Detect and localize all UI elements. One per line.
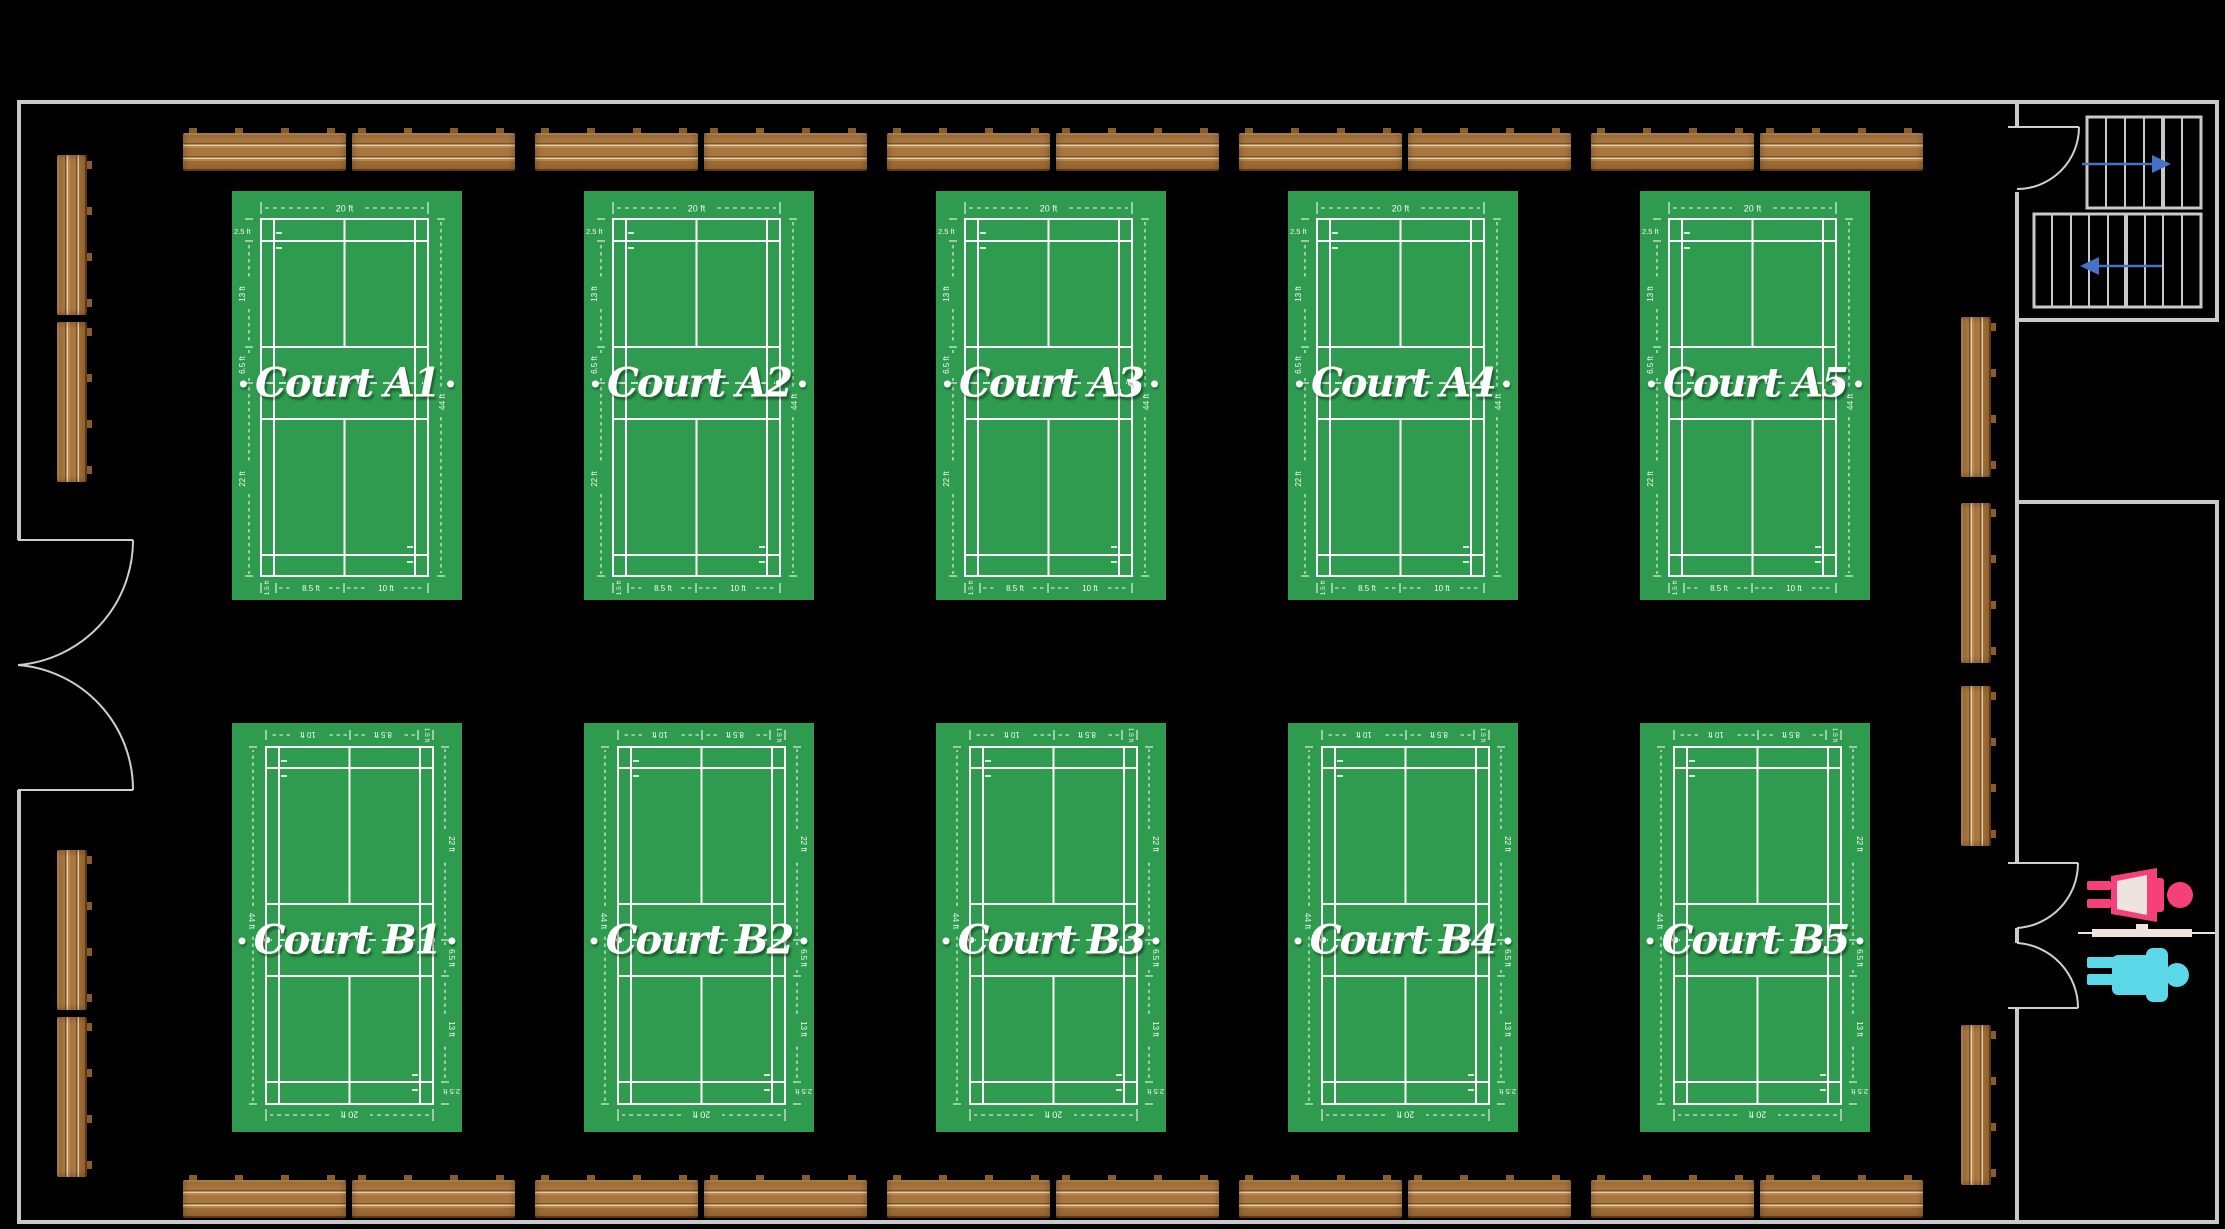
court-b5: 20 ft 2.5 ft 13 ft 6.5 ft 22 ft 44 ft 1.… [1640, 723, 1870, 1132]
bench [183, 133, 346, 171]
svg-text:20 ft: 20 ft [336, 204, 354, 214]
svg-text:22 ft: 22 ft [590, 470, 599, 486]
svg-text:2.5 ft: 2.5 ft [1642, 227, 1660, 236]
court-name: Court B5 [1662, 917, 1849, 964]
court-label: • Court B5 • [1646, 917, 1865, 964]
svg-text:8.5 ft: 8.5 ft [1710, 584, 1729, 593]
svg-text:1.5 ft: 1.5 ft [423, 728, 430, 743]
court-b1: 20 ft 2.5 ft 13 ft 6.5 ft 22 ft 44 ft 1.… [232, 723, 462, 1132]
net-dot-icon: • [1647, 378, 1656, 388]
svg-text:13 ft: 13 ft [1646, 285, 1655, 301]
net-dot-icon: • [1503, 935, 1512, 945]
court-name: Court A5 [1663, 360, 1847, 407]
svg-text:2.5 ft: 2.5 ft [234, 227, 252, 236]
svg-text:8.5 ft: 8.5 ft [654, 584, 673, 593]
bench [887, 1180, 1050, 1218]
court-name: Court A3 [959, 360, 1143, 407]
wall-top [17, 100, 2219, 104]
bench [352, 133, 515, 171]
court-a4: 20 ft 2.5 ft 13 ft 6.5 ft 22 ft 44 ft 1.… [1288, 191, 1518, 600]
net-dot-icon: • [1294, 935, 1303, 945]
svg-text:13 ft: 13 ft [942, 285, 951, 301]
svg-text:1.5 ft: 1.5 ft [1479, 728, 1486, 743]
court-a5: 20 ft 2.5 ft 13 ft 6.5 ft 22 ft 44 ft 1.… [1640, 191, 1870, 600]
svg-text:1.5 ft: 1.5 ft [1320, 581, 1327, 596]
svg-text:2.5 ft: 2.5 ft [1498, 1087, 1516, 1096]
bench [57, 155, 87, 315]
court-name: Court B2 [606, 917, 793, 964]
court-b2: 20 ft 2.5 ft 13 ft 6.5 ft 22 ft 44 ft 1.… [584, 723, 814, 1132]
stair-room-door [2008, 127, 2079, 189]
svg-text:22 ft: 22 ft [1646, 470, 1655, 486]
svg-text:10 ft: 10 ft [651, 730, 667, 739]
net-dot-icon: • [446, 378, 455, 388]
wall-left-upper [17, 100, 21, 540]
svg-text:20 ft: 20 ft [1744, 204, 1762, 214]
restroom-area [2078, 868, 2215, 1002]
court-name: Court A2 [607, 360, 791, 407]
svg-text:13 ft: 13 ft [590, 285, 599, 301]
svg-text:10 ft: 10 ft [1707, 730, 1723, 739]
bench [535, 1180, 698, 1218]
court-label: • Court B3 • [942, 917, 1161, 964]
svg-text:1.5 ft: 1.5 ft [1127, 728, 1134, 743]
net-dot-icon: • [942, 935, 951, 945]
svg-text:20 ft: 20 ft [1040, 204, 1058, 214]
wall-right-upper [2215, 100, 2219, 321]
svg-text:2.5 ft: 2.5 ft [1290, 227, 1308, 236]
wall-inner-seg1 [2015, 100, 2019, 127]
stairs-down-arrow-icon [2080, 257, 2162, 275]
court-label: • Court A4 • [1295, 360, 1511, 407]
svg-text:8.5 ft: 8.5 ft [302, 584, 321, 593]
wall-left-lower [17, 790, 21, 1224]
svg-text:1.5 ft: 1.5 ft [1831, 728, 1838, 743]
bench [57, 850, 87, 1010]
court-b4: 20 ft 2.5 ft 13 ft 6.5 ft 22 ft 44 ft 1.… [1288, 723, 1518, 1132]
svg-text:10 ft: 10 ft [1786, 584, 1802, 593]
court-name: Court A1 [255, 360, 439, 407]
svg-text:20 ft: 20 ft [340, 1110, 358, 1120]
court-label: • Court B2 • [590, 917, 809, 964]
svg-text:22 ft: 22 ft [942, 470, 951, 486]
wall-inner-seg2 [2015, 192, 2019, 863]
net-dot-icon: • [1502, 378, 1511, 388]
net-dot-icon: • [590, 935, 599, 945]
svg-text:10 ft: 10 ft [299, 730, 315, 739]
court-label: • Court A2 • [591, 360, 807, 407]
svg-text:10 ft: 10 ft [730, 584, 746, 593]
wall-inner-seg3 [2015, 928, 2019, 943]
svg-text:1.5 ft: 1.5 ft [968, 581, 975, 596]
svg-text:13 ft: 13 ft [447, 1021, 456, 1037]
bench [887, 133, 1050, 171]
svg-text:13 ft: 13 ft [1503, 1021, 1512, 1037]
bench [1760, 133, 1923, 171]
bench [1239, 1180, 1402, 1218]
svg-text:20 ft: 20 ft [1396, 1110, 1414, 1120]
court-label: • Court B1 • [238, 917, 457, 964]
stair-steps [2052, 117, 2182, 307]
svg-text:10 ft: 10 ft [1003, 730, 1019, 739]
net-dot-icon: • [239, 378, 248, 388]
bench [1961, 317, 1991, 477]
badminton-facility-floorplan: 20 ft 2.5 ft 13 ft 6.5 ft 22 ft 44 ft 1.… [0, 0, 2225, 1229]
wall-bottom [17, 1220, 2219, 1224]
svg-text:2.5 ft: 2.5 ft [586, 227, 604, 236]
wall-inner-seg4 [2015, 1008, 2019, 1224]
net-dot-icon: • [1295, 378, 1304, 388]
staircase [2034, 117, 2201, 307]
bench [1056, 133, 1219, 171]
court-label: • Court A1 • [239, 360, 455, 407]
svg-text:22 ft: 22 ft [1294, 470, 1303, 486]
svg-text:22 ft: 22 ft [799, 836, 808, 852]
bench [1760, 1180, 1923, 1218]
net-dot-icon: • [1855, 935, 1864, 945]
svg-text:1.5 ft: 1.5 ft [616, 581, 623, 596]
svg-text:13 ft: 13 ft [1294, 285, 1303, 301]
svg-text:1.5 ft: 1.5 ft [1672, 581, 1679, 596]
svg-text:22 ft: 22 ft [1151, 836, 1160, 852]
net-dot-icon: • [943, 378, 952, 388]
stairs-up-arrow-icon [2082, 155, 2171, 173]
bench [1408, 133, 1571, 171]
court-name: Court B1 [254, 917, 441, 964]
bench [1591, 133, 1754, 171]
bench [1961, 1025, 1991, 1185]
svg-text:10 ft: 10 ft [1082, 584, 1098, 593]
bench [57, 1017, 87, 1177]
wall-stairroom-bottom [2015, 318, 2219, 322]
svg-text:8.5 ft: 8.5 ft [373, 730, 392, 739]
svg-text:2.5 ft: 2.5 ft [442, 1087, 460, 1096]
bench [183, 1180, 346, 1218]
court-name: Court B3 [958, 917, 1145, 964]
svg-text:2.5 ft: 2.5 ft [1850, 1087, 1868, 1096]
svg-text:2.5 ft: 2.5 ft [1146, 1087, 1164, 1096]
bench [1961, 503, 1991, 663]
svg-text:20 ft: 20 ft [1044, 1110, 1062, 1120]
bench [57, 322, 87, 482]
svg-text:2.5 ft: 2.5 ft [794, 1087, 812, 1096]
main-entrance-doors [18, 540, 133, 790]
bench [535, 133, 698, 171]
court-a1: 20 ft 2.5 ft 13 ft 6.5 ft 22 ft 44 ft 1.… [232, 191, 462, 600]
svg-text:10 ft: 10 ft [1355, 730, 1371, 739]
court-name: Court A4 [1311, 360, 1495, 407]
male-restroom-icon [2087, 948, 2189, 1002]
svg-text:8.5 ft: 8.5 ft [725, 730, 744, 739]
bench [1239, 133, 1402, 171]
net-dot-icon: • [238, 935, 247, 945]
restroom-divider [2078, 924, 2215, 937]
bench [704, 1180, 867, 1218]
svg-text:8.5 ft: 8.5 ft [1358, 584, 1377, 593]
female-restroom-icon [2087, 868, 2193, 922]
net-dot-icon: • [1854, 378, 1863, 388]
svg-text:1.5 ft: 1.5 ft [775, 728, 782, 743]
restroom-door-lower [2008, 943, 2078, 1008]
svg-text:20 ft: 20 ft [1748, 1110, 1766, 1120]
svg-text:22 ft: 22 ft [1503, 836, 1512, 852]
svg-text:13 ft: 13 ft [238, 285, 247, 301]
svg-text:22 ft: 22 ft [1855, 836, 1864, 852]
net-dot-icon: • [798, 378, 807, 388]
svg-text:20 ft: 20 ft [688, 204, 706, 214]
stairs-lower-flight [2034, 214, 2201, 307]
court-a2: 20 ft 2.5 ft 13 ft 6.5 ft 22 ft 44 ft 1.… [584, 191, 814, 600]
net-dot-icon: • [799, 935, 808, 945]
bench [704, 133, 867, 171]
bench [1591, 1180, 1754, 1218]
net-dot-icon: • [1646, 935, 1655, 945]
court-label: • Court B4 • [1294, 917, 1513, 964]
bench [1408, 1180, 1571, 1218]
bench [1056, 1180, 1219, 1218]
svg-text:2.5 ft: 2.5 ft [938, 227, 956, 236]
svg-text:8.5 ft: 8.5 ft [1077, 730, 1096, 739]
net-dot-icon: • [447, 935, 456, 945]
svg-text:20 ft: 20 ft [1392, 204, 1410, 214]
svg-text:22 ft: 22 ft [238, 470, 247, 486]
court-name: Court B4 [1310, 917, 1497, 964]
svg-text:10 ft: 10 ft [378, 584, 394, 593]
svg-text:8.5 ft: 8.5 ft [1006, 584, 1025, 593]
net-dot-icon: • [591, 378, 600, 388]
svg-text:13 ft: 13 ft [799, 1021, 808, 1037]
svg-text:1.5 ft: 1.5 ft [264, 581, 271, 596]
restroom-door-upper [2008, 863, 2078, 928]
svg-text:10 ft: 10 ft [1434, 584, 1450, 593]
net-dot-icon: • [1150, 378, 1159, 388]
svg-text:13 ft: 13 ft [1151, 1021, 1160, 1037]
svg-text:22 ft: 22 ft [447, 836, 456, 852]
bench [352, 1180, 515, 1218]
court-a3: 20 ft 2.5 ft 13 ft 6.5 ft 22 ft 44 ft 1.… [936, 191, 1166, 600]
wall-right-lower [2215, 500, 2219, 1224]
court-b3: 20 ft 2.5 ft 13 ft 6.5 ft 22 ft 44 ft 1.… [936, 723, 1166, 1132]
svg-text:20 ft: 20 ft [692, 1110, 710, 1120]
svg-text:13 ft: 13 ft [1855, 1021, 1864, 1037]
svg-text:8.5 ft: 8.5 ft [1781, 730, 1800, 739]
svg-text:8.5 ft: 8.5 ft [1429, 730, 1448, 739]
court-label: • Court A5 • [1647, 360, 1863, 407]
court-label: • Court A3 • [943, 360, 1159, 407]
bench [1961, 686, 1991, 846]
net-dot-icon: • [1151, 935, 1160, 945]
wall-annex-section [2015, 500, 2219, 504]
